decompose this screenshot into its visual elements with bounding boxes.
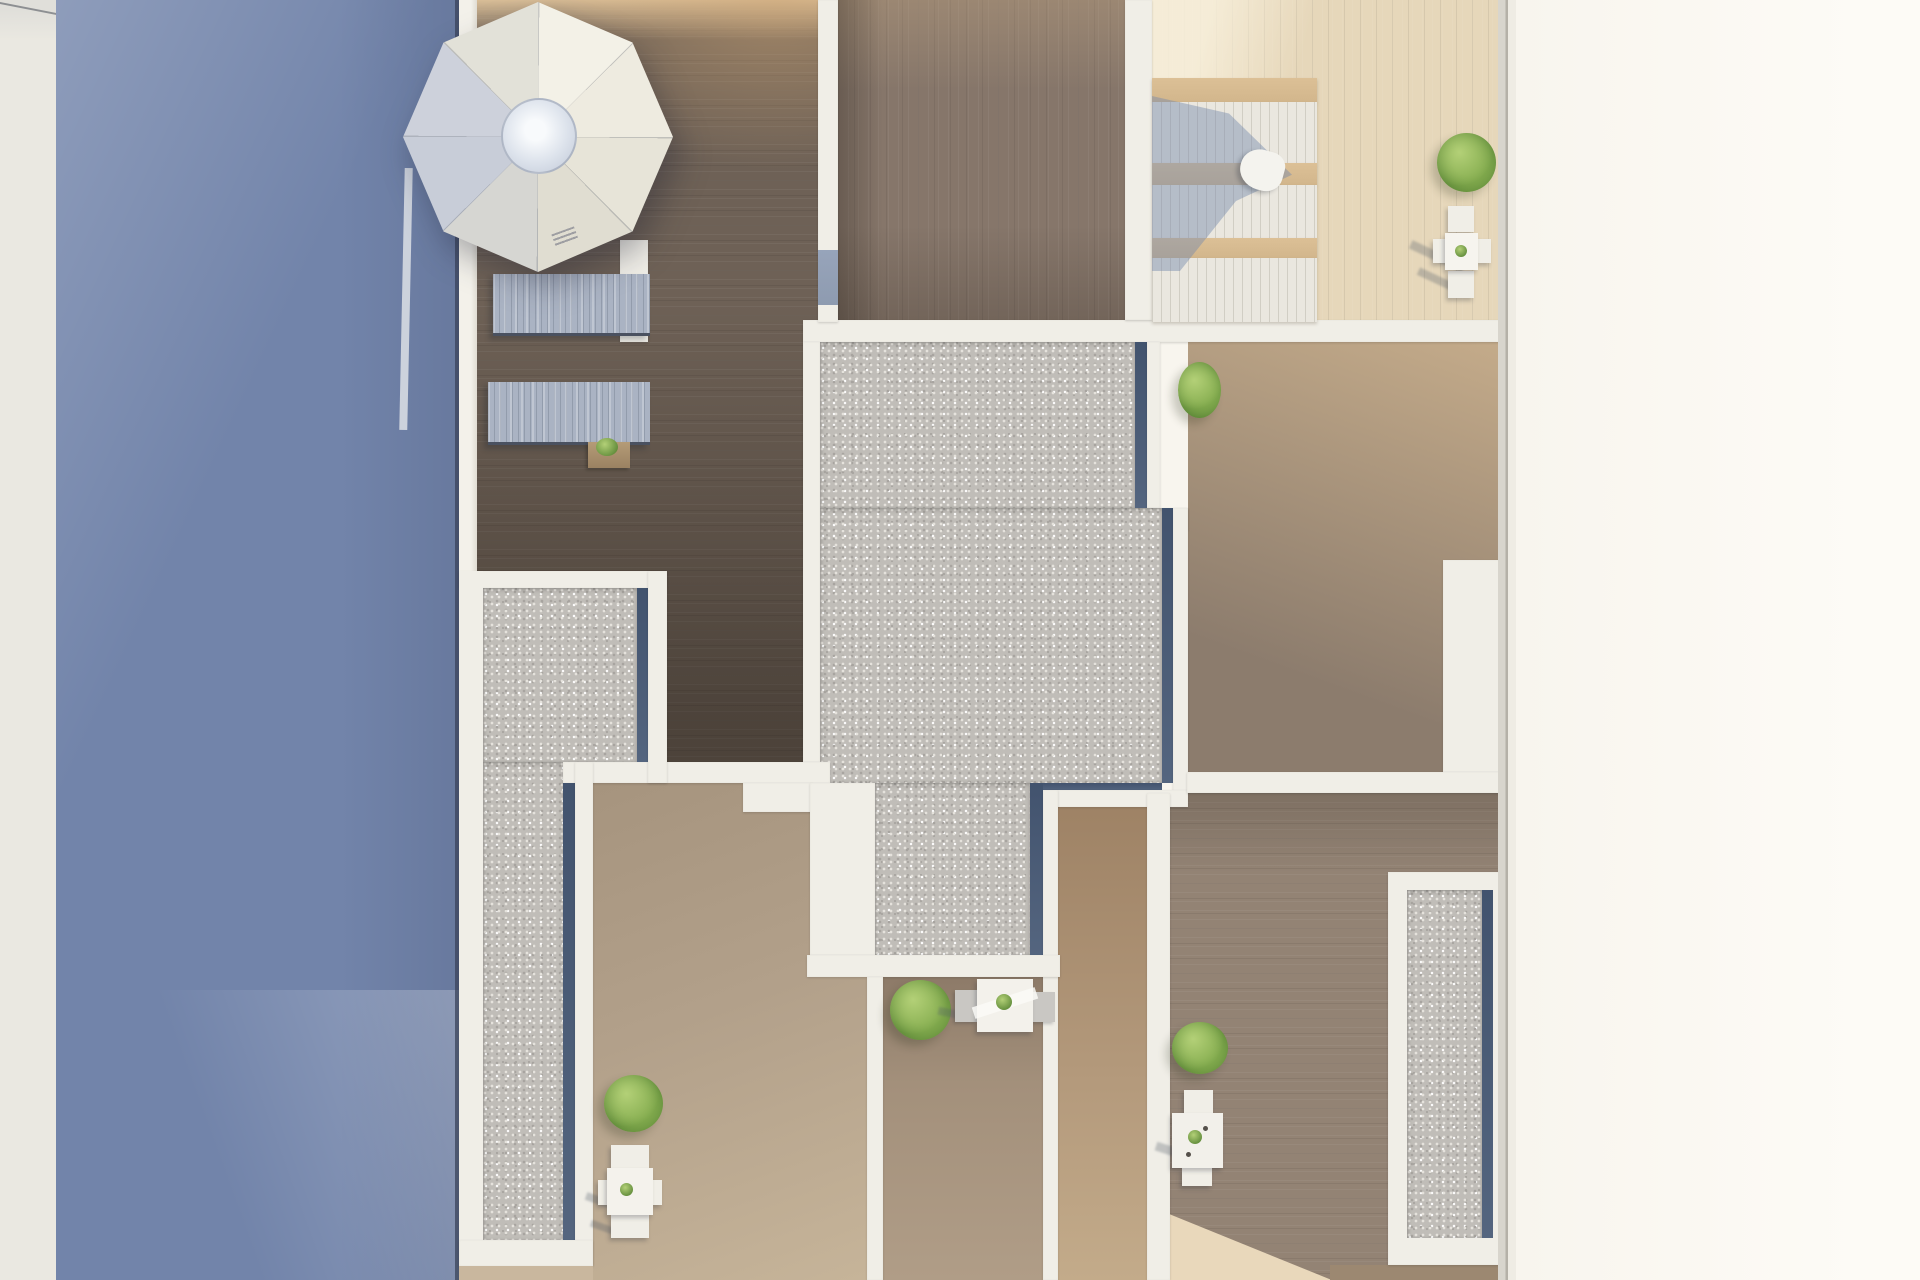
building-right-edge [1498, 0, 1516, 1280]
wall-stub [743, 783, 813, 812]
right-margin-strip [1516, 0, 1920, 1280]
deck-walkway [1058, 790, 1147, 1280]
gravel-left-upper [483, 588, 637, 762]
gravel-left-top-border [459, 571, 667, 588]
gravel-center-bottom-border [807, 955, 1060, 977]
gravel-right-glass-edge [1482, 890, 1493, 1238]
gravel-center-lower-border-left [810, 783, 875, 955]
gravel-left-bottom-walk [459, 1266, 593, 1280]
walkband-top [803, 320, 1500, 342]
gravel-left-upper-glass-edge [637, 588, 648, 762]
tableE-cup-2 [1186, 1152, 1191, 1157]
deck-lower-right-topshade [1170, 793, 1500, 873]
tableC-chair-right [1478, 239, 1491, 263]
sun-lounger-1 [493, 274, 650, 336]
tableC-plant [1455, 245, 1467, 257]
wall-lower-right [1147, 793, 1170, 1280]
tableC-chair-top [1448, 206, 1474, 232]
tableC-chair-bottom [1448, 271, 1474, 298]
wall-upper-left-glass [818, 250, 838, 305]
deck-lower-right-bottom-strip [1330, 1265, 1500, 1280]
gravel-left-bottom-border [459, 1240, 593, 1266]
plant-upper-right [1437, 133, 1496, 192]
middle-right-white-area [1443, 560, 1500, 772]
tableF-chair-left [598, 1180, 607, 1205]
rooftop-render [0, 0, 1920, 1280]
tableH-plant [996, 994, 1012, 1010]
lounger-row-beam-0 [1152, 78, 1317, 102]
pool-sheen-bottom [56, 990, 459, 1280]
plant-lower-right [1172, 1022, 1228, 1074]
tableE-chair-bottom [1182, 1168, 1212, 1186]
gravel-left-lower [483, 762, 563, 1240]
gravel-left-upper-border-right [648, 571, 667, 783]
parasol-hub [501, 98, 577, 174]
wall-upper-right [1125, 0, 1152, 320]
band-middle-right [1187, 772, 1512, 793]
parasol [403, 2, 673, 272]
gravel-left-lower-glass-edge [563, 783, 575, 1240]
deck-upper-middle-shading [838, 0, 1125, 322]
crossband-left [563, 762, 830, 783]
tableE-plant [1188, 1130, 1202, 1144]
tableE-chair-top [1184, 1090, 1213, 1113]
tableF-chair-bottom [611, 1215, 649, 1238]
tableF-plant [620, 1183, 633, 1196]
tableE-cup-1 [1203, 1126, 1208, 1131]
gravel-center-mid-glass-edge [1162, 508, 1173, 783]
gravel-right-bed [1407, 890, 1482, 1238]
left-margin-strip [0, 0, 56, 1280]
gravel-center-upper-border-right [1147, 342, 1160, 508]
gravel-left-lower-border-right [575, 762, 593, 1265]
gravel-center-upper-glass-edge [1135, 342, 1147, 508]
planter-box-plant [596, 438, 618, 456]
tableF-chair-right [653, 1180, 662, 1205]
gravel-center-mid [820, 508, 1162, 783]
gravel-center-mid-border-right [1173, 508, 1188, 793]
wall-bottom-middle [867, 977, 883, 1280]
tableF-chair-top [611, 1145, 649, 1168]
gravel-center-border-left [803, 342, 820, 762]
gravel-left-west-border [459, 571, 483, 1280]
sun-lounger-2 [488, 382, 650, 445]
plant-middle-right [1178, 362, 1221, 418]
gravel-center-lower-glass-edge [1030, 783, 1043, 955]
gravel-center-lower [875, 783, 1030, 955]
gravel-center-upper [820, 342, 1135, 508]
walkway-border-left [1043, 790, 1058, 1280]
plant-lower-left [604, 1075, 663, 1132]
